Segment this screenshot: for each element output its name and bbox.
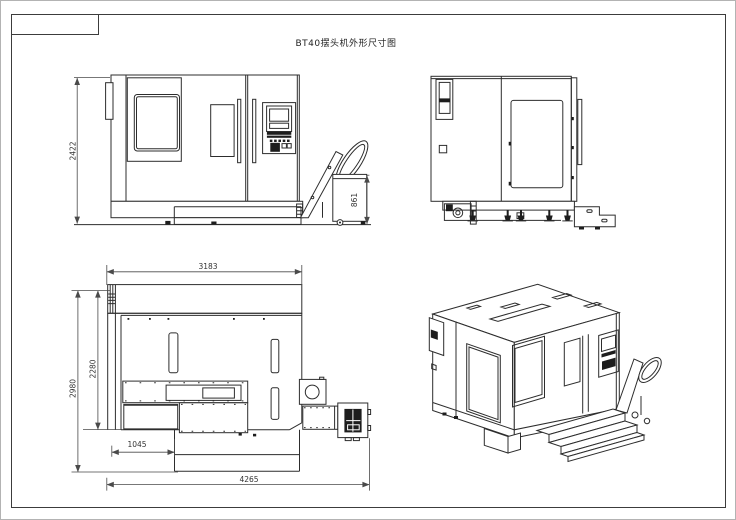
front-view: 2422 861 — [69, 75, 374, 225]
door-handle-right — [253, 99, 256, 162]
front-mid-window — [211, 105, 234, 157]
dim-label-861: 861 — [350, 193, 359, 208]
roof-slot — [271, 339, 279, 372]
outrigger-bracket — [574, 207, 615, 227]
table-assembly — [123, 381, 248, 403]
drawing-sheet: BT40摆头机外形尺寸图 — [0, 0, 736, 520]
dim-offset-left: 1045 — [112, 439, 175, 457]
dim-label-1045: 1045 — [127, 440, 146, 449]
chip-conveyor-front — [301, 136, 374, 225]
conveyor-trough-plan — [303, 406, 338, 429]
chip-trough-steps — [175, 430, 300, 471]
control-panel-front — [263, 103, 296, 154]
machine-plan-outline — [108, 285, 371, 472]
side-view — [431, 76, 615, 229]
dim-label-2422: 2422 — [69, 141, 78, 160]
pump-box-plan — [299, 379, 326, 404]
dim-width-top: 3183 — [107, 262, 302, 285]
isometric-view — [429, 284, 665, 461]
machine-base-front — [111, 201, 303, 224]
iso-caster-wheel — [632, 412, 638, 418]
machine-base-side — [443, 201, 615, 229]
dim-label-2280: 2280 — [89, 359, 98, 378]
door-handle-left — [238, 99, 241, 162]
plan-view: 3183 2980 2280 1045 4265 — [69, 262, 371, 491]
front-door-window — [134, 95, 179, 152]
iso-caster-wheel — [644, 418, 649, 423]
front-step-plate — [124, 404, 178, 429]
dim-label-2980: 2980 — [69, 379, 78, 398]
machine-iso — [429, 284, 665, 461]
dim-label-4265: 4265 — [239, 475, 258, 484]
iso-conveyor-arm — [616, 359, 643, 413]
drawing-canvas: 2422 861 — [1, 1, 736, 520]
roof-slot — [169, 333, 178, 373]
machine-side-outline — [431, 76, 582, 201]
dim-label-3183: 3183 — [198, 262, 217, 271]
roof-slot — [271, 388, 279, 420]
leveling-feet — [468, 210, 573, 221]
dim-overall-height: 2422 — [69, 78, 111, 224]
